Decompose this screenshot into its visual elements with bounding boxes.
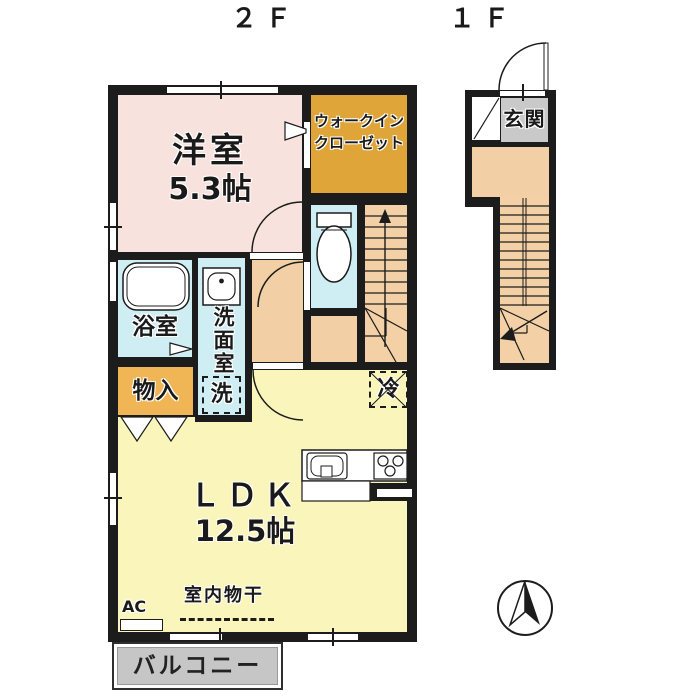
room-label-western-name: 洋室 [118,132,302,172]
window-ldk-left [108,473,118,525]
washing-machine-label: 洗 [210,383,232,406]
floor-label-2f: ２Ｆ [225,5,305,35]
window-tick [220,81,222,99]
window-tick [332,628,334,646]
refrigerator-label: 冷 [377,378,399,401]
window-tick [104,497,122,499]
hall-1f [472,147,549,197]
entry-door-swing-area [472,97,500,140]
ac-label: AC [122,599,166,617]
stairs-1f [500,197,549,363]
window-tick [522,84,524,101]
room-toilet [311,205,357,308]
room-label-western-size: 5.3帖 [118,172,302,208]
room-label-wic-line2: クローゼット [309,134,409,154]
room-label-ldk-size: 12.5帖 [165,514,325,548]
door-gap-western [250,252,303,260]
window-bathroom [108,262,118,301]
window-balcony-1 [170,632,222,642]
ac-unit-box [120,619,163,631]
door-gap-toilet [303,262,311,310]
window-top [167,85,278,95]
floor-plan: ２Ｆ １Ｆ バルコニー 洗 冷 [0,0,700,700]
room-label-storage: 物入 [118,378,193,404]
floor-label-1f: １Ｆ [443,5,523,35]
window-tick [104,226,122,228]
room-label-entrance: 玄関 [500,106,549,132]
hallway-lower [311,316,357,362]
refrigerator-space: 冷 [369,371,408,408]
room-label-bathroom: 浴室 [118,314,192,340]
wall-washroom-bottom [195,415,252,422]
door-gap-ldk [253,362,303,370]
stairs-2f [365,205,407,362]
room-bathroom [118,260,192,357]
indoor-drying-rail [180,608,274,621]
balcony: バルコニー [112,642,283,690]
room-label-wic-line1: ウォークイン [309,112,409,132]
room-label-ldk-name: ＬＤＫ [165,478,325,514]
indoor-drying-label: 室内物干 [169,586,279,606]
hallway [252,258,303,362]
room-label-washroom: 洗面室 [208,306,234,382]
north-compass-icon [498,581,552,635]
balcony-label: バルコニー [114,644,281,688]
